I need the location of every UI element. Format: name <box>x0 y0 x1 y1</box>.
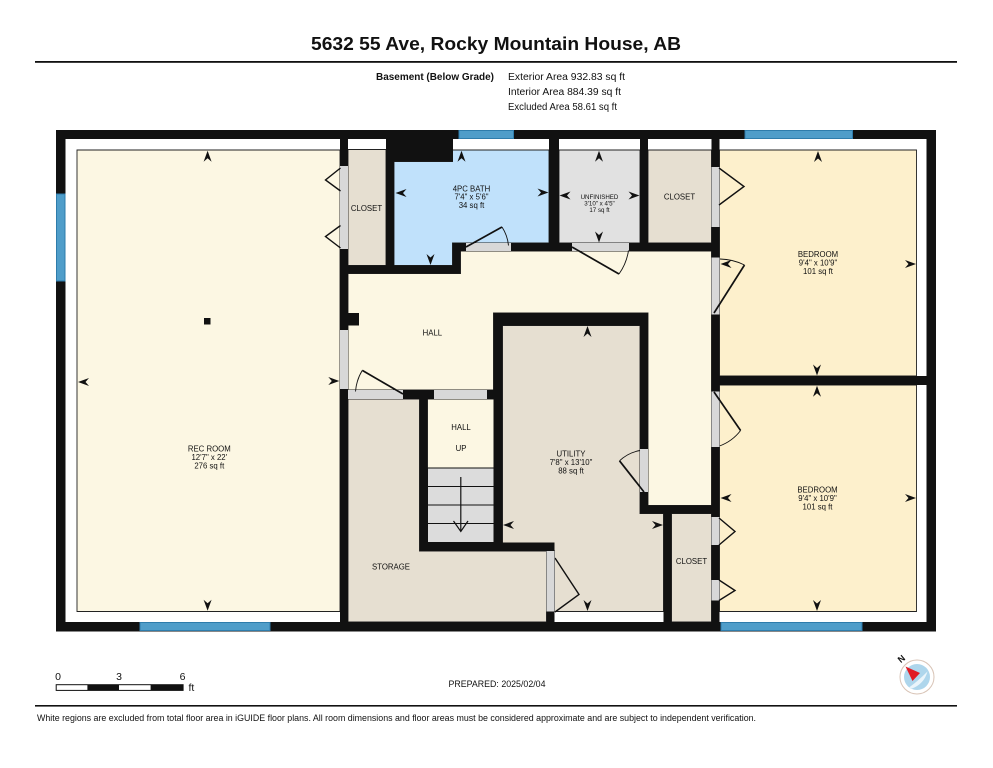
svg-text:88 sq ft: 88 sq ft <box>558 467 584 476</box>
svg-text:3: 3 <box>116 671 122 683</box>
svg-text:HALL: HALL <box>451 423 471 432</box>
svg-text:34 sq ft: 34 sq ft <box>459 201 485 210</box>
svg-text:0: 0 <box>55 671 61 683</box>
svg-text:UP: UP <box>456 444 467 453</box>
svg-text:6: 6 <box>180 671 186 683</box>
svg-text:STORAGE: STORAGE <box>372 563 410 572</box>
svg-text:Exterior Area 932.83 sq ft: Exterior Area 932.83 sq ft <box>508 72 625 83</box>
svg-text:CLOSET: CLOSET <box>664 192 695 201</box>
svg-text:PREPARED: 2025/02/04: PREPARED: 2025/02/04 <box>449 679 546 689</box>
svg-text:101 sq ft: 101 sq ft <box>803 503 834 512</box>
svg-text:ft: ft <box>189 682 195 694</box>
svg-text:Basement (Below Grade): Basement (Below Grade) <box>376 72 494 83</box>
svg-text:Interior Area 884.39 sq ft: Interior Area 884.39 sq ft <box>508 87 621 98</box>
svg-text:17 sq ft: 17 sq ft <box>589 207 610 214</box>
svg-text:HALL: HALL <box>423 329 443 338</box>
svg-text:N: N <box>896 653 907 665</box>
svg-text:5632 55 Ave, Rocky Mountain Ho: 5632 55 Ave, Rocky Mountain House, AB <box>311 33 681 54</box>
svg-text:White regions are excluded fro: White regions are excluded from total fl… <box>37 713 756 723</box>
svg-text:CLOSET: CLOSET <box>351 204 382 213</box>
svg-text:276 sq ft: 276 sq ft <box>194 461 225 470</box>
svg-text:CLOSET: CLOSET <box>676 557 707 566</box>
svg-text:101 sq ft: 101 sq ft <box>803 267 834 276</box>
svg-text:Excluded Area 58.61 sq ft: Excluded Area 58.61 sq ft <box>508 102 617 113</box>
